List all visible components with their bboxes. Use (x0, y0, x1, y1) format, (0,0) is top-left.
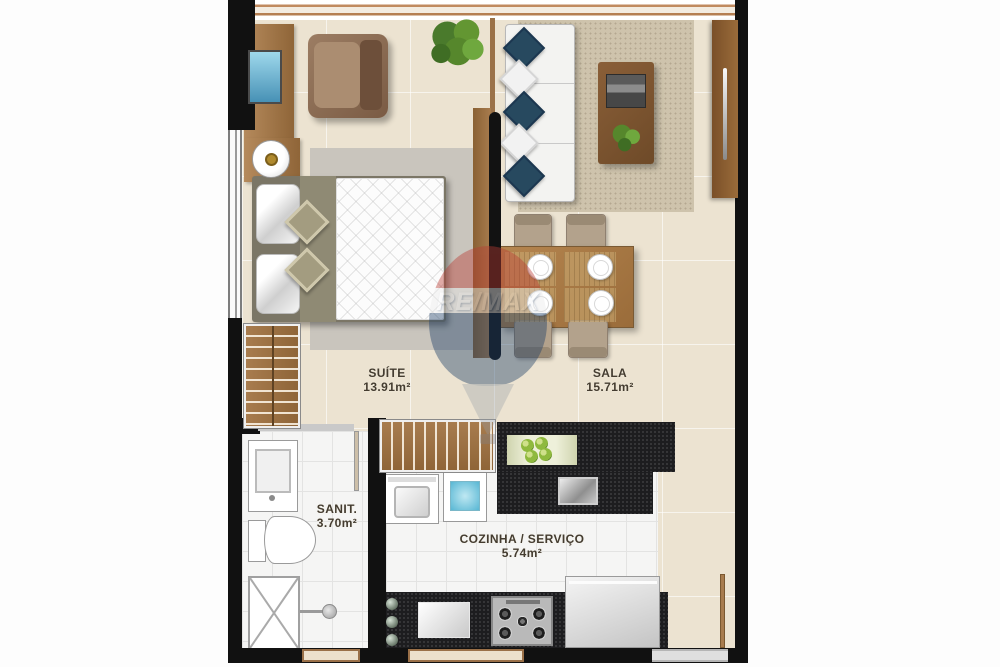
sala-area: 15.71m² (560, 380, 660, 394)
refrigerator (565, 576, 660, 648)
floor-plan-page: SUÍTE 13.91m² SALA 15.71m² SANIT. 3.70m²… (0, 0, 1000, 667)
laundry-tank (443, 472, 487, 522)
sofa (505, 24, 575, 202)
sala-label: SALA 15.71m² (560, 366, 660, 394)
shower-arm (300, 610, 324, 613)
dinner-plate (588, 290, 614, 316)
lime-fruit (525, 450, 538, 463)
armchair (308, 34, 388, 118)
service-door-opening (652, 649, 728, 662)
cozinha-area: 5.74m² (442, 546, 602, 560)
burner (532, 626, 546, 640)
lamp-center (265, 153, 278, 166)
service-closet (380, 420, 495, 472)
sanit-label: SANIT. 3.70m² (287, 502, 387, 530)
suite-window (228, 130, 242, 318)
gas-cooktop (491, 596, 553, 646)
table-lamp (252, 140, 290, 178)
laundry-basin (450, 481, 480, 511)
dinner-plate (527, 254, 553, 280)
kitchen-bottom-window (408, 649, 524, 662)
window-pane (235, 130, 237, 318)
double-bed (252, 176, 446, 322)
suite-wardrobe (244, 324, 300, 428)
bathroom-bottom-window (302, 649, 360, 662)
coffee-table (598, 62, 654, 164)
bed-duvet (336, 178, 444, 320)
fridge-highlight (569, 581, 657, 584)
washer-door (394, 486, 430, 518)
suite-tv-screen (248, 50, 282, 104)
wardrobe-rail (272, 326, 274, 426)
shower-head (322, 604, 337, 619)
door-handle (723, 68, 727, 160)
coffee-table-tray (606, 74, 646, 108)
bathroom-sink (255, 449, 291, 493)
burner (498, 607, 512, 621)
suite-label: SUÍTE 13.91m² (337, 366, 437, 394)
washer-panel (388, 477, 436, 482)
counter-tray (418, 602, 470, 638)
sofa-pillow-navy (503, 27, 545, 69)
dinner-plate (527, 290, 553, 316)
coffee-table-plant (606, 118, 646, 158)
center-burner (517, 616, 528, 627)
counter-knob (386, 634, 398, 646)
kitchen-sink (558, 477, 598, 505)
service-door (720, 574, 725, 648)
counter-knob (386, 616, 398, 628)
sofa-pillow-white (499, 123, 539, 163)
burner (532, 607, 546, 621)
suite-area: 13.91m² (337, 380, 437, 394)
chair-back (515, 215, 551, 225)
sofa-seam (534, 143, 574, 144)
wall-segment (228, 318, 242, 663)
sofa-seam (534, 83, 574, 84)
dinner-plate (587, 254, 613, 280)
potted-plant (426, 10, 490, 80)
burner (498, 626, 512, 640)
dining-chair (514, 320, 552, 358)
chair-back (515, 347, 551, 357)
faucet (269, 495, 275, 501)
chair-back (567, 215, 605, 225)
suite-name: SUÍTE (337, 366, 437, 380)
chair-back (569, 347, 607, 357)
sala-name: SALA (560, 366, 660, 380)
armchair-back (360, 40, 382, 110)
washing-machine (385, 474, 439, 524)
cozinha-label: COZINHA / SERVIÇO 5.74m² (442, 532, 602, 560)
entry-door (712, 20, 738, 198)
divider-wall (490, 18, 495, 113)
armchair-seat (314, 42, 360, 108)
sofa-pillow-navy (503, 155, 545, 197)
sanit-name: SANIT. (287, 502, 387, 516)
dining-chair (568, 320, 608, 358)
lime-fruit (539, 448, 552, 461)
sofa-pillow-navy (503, 91, 545, 133)
tv-screen (489, 112, 501, 360)
bathroom-door (354, 431, 359, 491)
cooktop-controls (506, 600, 540, 604)
shower-tray (248, 576, 300, 650)
counter-knob (386, 598, 398, 610)
cozinha-name: COZINHA / SERVIÇO (442, 532, 602, 546)
apartment-floor-plan: SUÍTE 13.91m² SALA 15.71m² SANIT. 3.70m²… (228, 0, 748, 667)
sanit-area: 3.70m² (287, 516, 387, 530)
sofa-pillow-white (499, 59, 539, 99)
